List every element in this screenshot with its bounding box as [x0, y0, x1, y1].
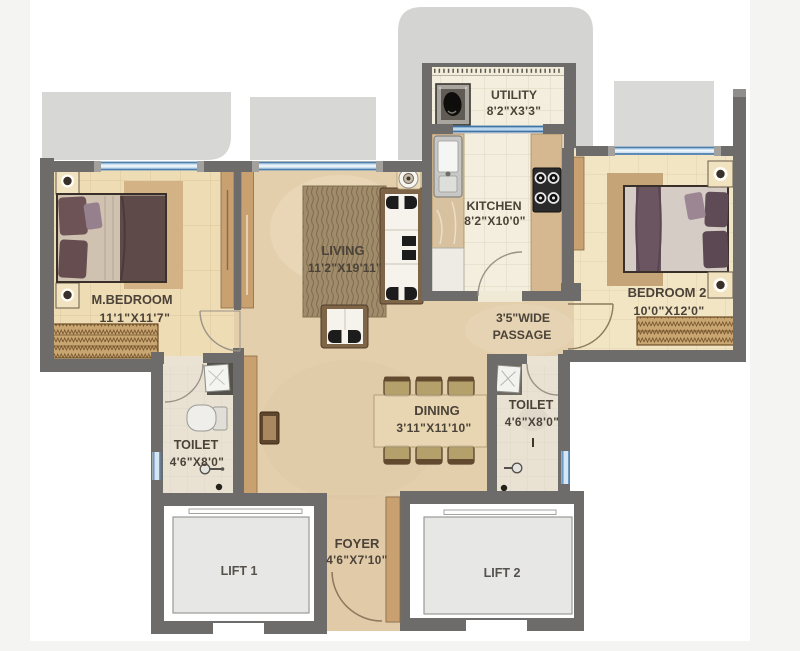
svg-text:8'2"X10'0": 8'2"X10'0": [464, 214, 525, 228]
svg-text:BEDROOM 2: BEDROOM 2: [628, 285, 707, 300]
svg-text:8'2"X3'3": 8'2"X3'3": [487, 104, 542, 118]
svg-text:TOILET: TOILET: [509, 398, 554, 412]
svg-text:10'0"X12'0": 10'0"X12'0": [633, 304, 704, 318]
svg-text:M.BEDROOM: M.BEDROOM: [91, 292, 172, 307]
svg-text:LIVING: LIVING: [321, 243, 364, 258]
svg-text:4'6"X7'10": 4'6"X7'10": [326, 553, 387, 567]
svg-text:11'1"X11'7": 11'1"X11'7": [100, 311, 171, 325]
svg-text:LIFT 2: LIFT 2: [484, 566, 521, 580]
svg-text:LIFT 1: LIFT 1: [221, 564, 258, 578]
svg-text:FOYER: FOYER: [335, 536, 380, 551]
svg-text:4'6"X8'0": 4'6"X8'0": [170, 455, 225, 469]
svg-text:KITCHEN: KITCHEN: [466, 199, 521, 213]
svg-text:UTILITY: UTILITY: [491, 88, 537, 102]
svg-text:TOILET: TOILET: [174, 438, 219, 452]
svg-text:3'11"X11'10": 3'11"X11'10": [396, 421, 471, 435]
svg-text:3'5"WIDE: 3'5"WIDE: [496, 311, 550, 325]
svg-text:11'2"X19'11": 11'2"X19'11": [308, 261, 382, 275]
svg-text:PASSAGE: PASSAGE: [493, 328, 552, 342]
svg-text:DINING: DINING: [414, 403, 460, 418]
svg-text:4'6"X8'0": 4'6"X8'0": [505, 415, 560, 429]
